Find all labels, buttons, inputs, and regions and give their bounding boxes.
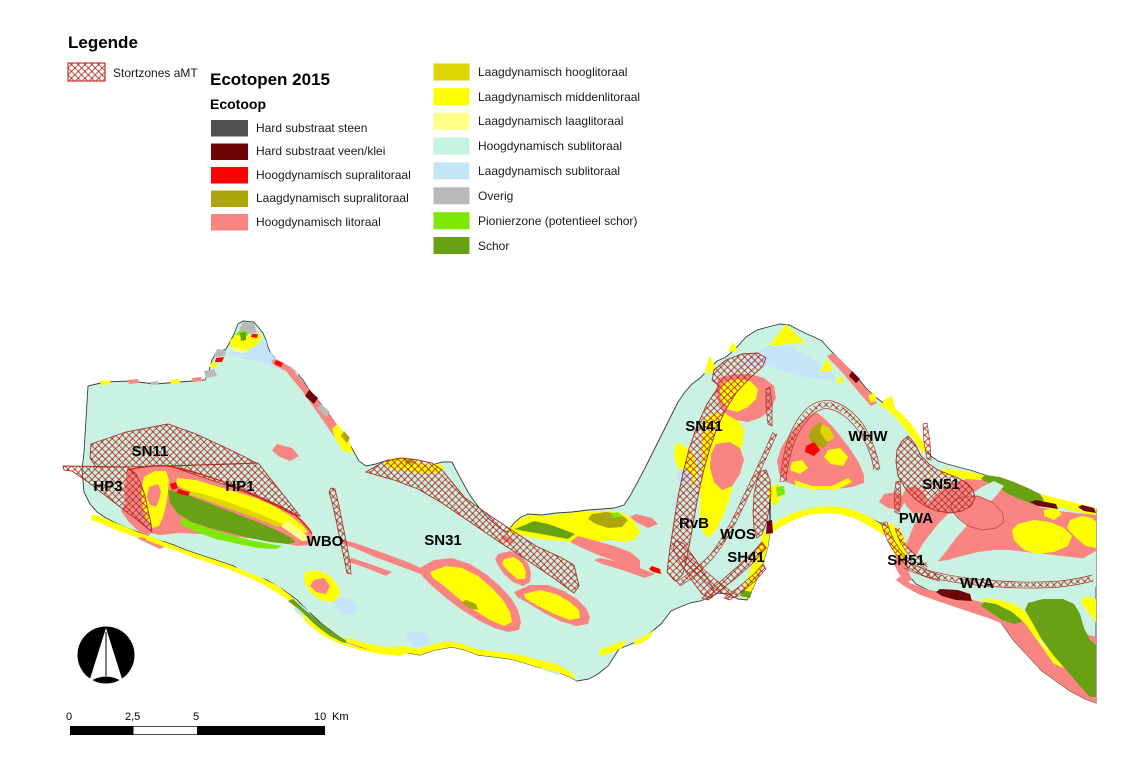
svg-text:2,5: 2,5 bbox=[125, 711, 140, 723]
svg-text:Laagdynamisch sublitoraal: Laagdynamisch sublitoraal bbox=[478, 164, 620, 178]
svg-text:Hoogdynamisch sublitoraal: Hoogdynamisch sublitoraal bbox=[478, 139, 622, 153]
svg-text:RvB: RvB bbox=[679, 515, 709, 532]
svg-text:SN51: SN51 bbox=[922, 476, 960, 493]
svg-text:0: 0 bbox=[66, 711, 72, 723]
svg-text:HP3: HP3 bbox=[93, 478, 122, 495]
svg-text:SN31: SN31 bbox=[424, 532, 462, 549]
svg-text:SH41: SH41 bbox=[727, 549, 765, 566]
svg-text:Laagdynamisch hooglitoraal: Laagdynamisch hooglitoraal bbox=[478, 65, 627, 79]
svg-text:SN11: SN11 bbox=[132, 443, 169, 460]
svg-text:Laagdynamisch laaglitoraal: Laagdynamisch laaglitoraal bbox=[478, 114, 623, 128]
svg-text:WHW: WHW bbox=[848, 428, 888, 445]
svg-text:Hard substraat steen: Hard substraat steen bbox=[256, 121, 367, 135]
svg-text:Laagdynamisch supralitoraal: Laagdynamisch supralitoraal bbox=[256, 191, 409, 205]
svg-text:Stortzones aMT: Stortzones aMT bbox=[113, 66, 198, 80]
svg-text:10: 10 bbox=[314, 711, 326, 723]
svg-text:PWA: PWA bbox=[899, 510, 933, 527]
svg-text:HP1: HP1 bbox=[225, 478, 254, 495]
svg-text:Legende: Legende bbox=[68, 33, 138, 52]
svg-text:Hard substraat veen/klei: Hard substraat veen/klei bbox=[256, 144, 385, 158]
svg-text:Hoogdynamisch supralitoraal: Hoogdynamisch supralitoraal bbox=[256, 168, 411, 182]
svg-text:WBO: WBO bbox=[307, 533, 344, 550]
svg-text:Ecotoop: Ecotoop bbox=[210, 96, 266, 112]
svg-text:Overig: Overig bbox=[478, 189, 513, 203]
svg-text:SN41: SN41 bbox=[685, 418, 723, 435]
svg-text:Km: Km bbox=[332, 711, 349, 723]
svg-text:WVA: WVA bbox=[960, 575, 994, 592]
svg-text:SH51: SH51 bbox=[887, 552, 925, 569]
svg-text:5: 5 bbox=[193, 711, 199, 723]
svg-text:Pionierzone (potentieel schor): Pionierzone (potentieel schor) bbox=[478, 214, 637, 228]
svg-text:Ecotopen 2015: Ecotopen 2015 bbox=[210, 70, 330, 89]
svg-text:Schor: Schor bbox=[478, 239, 509, 253]
svg-text:WOS: WOS bbox=[720, 526, 756, 543]
svg-text:Hoogdynamisch litoraal: Hoogdynamisch litoraal bbox=[256, 215, 381, 229]
svg-text:Laagdynamisch middenlitoraal: Laagdynamisch middenlitoraal bbox=[478, 90, 640, 104]
